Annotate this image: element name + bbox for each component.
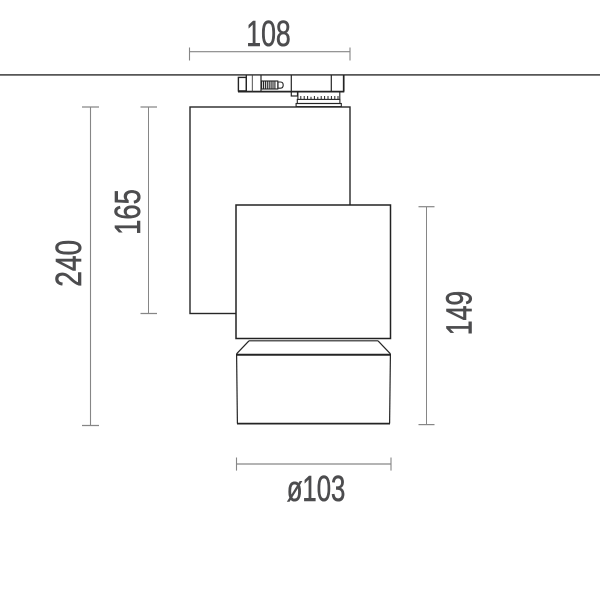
svg-text:149: 149 [438, 291, 479, 335]
svg-text:240: 240 [49, 240, 89, 287]
svg-text:ø103: ø103 [287, 467, 346, 509]
svg-text:165: 165 [107, 189, 148, 235]
svg-text:108: 108 [246, 13, 290, 54]
